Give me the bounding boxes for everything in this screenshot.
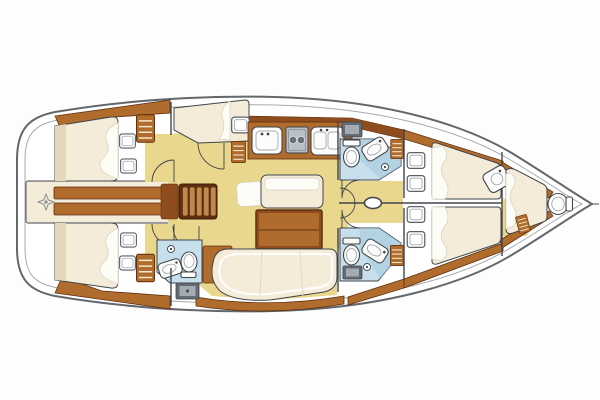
deck-hatch bbox=[407, 207, 425, 223]
settee bbox=[212, 249, 337, 300]
deck-hatch bbox=[407, 153, 425, 169]
stern-platform bbox=[26, 181, 172, 223]
shower-pan bbox=[343, 266, 362, 279]
louvered-locker bbox=[232, 141, 246, 162]
stern-step-board bbox=[54, 187, 171, 199]
shower-pan bbox=[176, 283, 199, 299]
berth-shading bbox=[55, 124, 66, 181]
yacht-floorplan bbox=[0, 0, 600, 400]
berth-shading bbox=[55, 223, 66, 281]
toilet bbox=[343, 238, 360, 265]
toilet bbox=[548, 194, 573, 215]
louvered-locker bbox=[136, 254, 154, 282]
two-burner-stove-icon bbox=[286, 127, 308, 153]
deck-hatch bbox=[120, 134, 136, 148]
shower-head-icon bbox=[364, 264, 371, 271]
deck-hatch bbox=[121, 159, 137, 173]
louvered-locker bbox=[136, 115, 154, 143]
double-sink bbox=[311, 127, 344, 155]
companionway bbox=[161, 184, 217, 219]
deck-hatch bbox=[407, 232, 425, 248]
louvered-locker bbox=[391, 139, 404, 158]
stern-step-board bbox=[54, 203, 171, 215]
stool bbox=[236, 181, 264, 207]
step-treads bbox=[183, 187, 217, 216]
deck-hatch bbox=[232, 117, 250, 133]
toilet bbox=[181, 252, 197, 278]
engine-box bbox=[161, 184, 178, 219]
bench bbox=[261, 175, 323, 208]
deck-hatch bbox=[121, 233, 137, 247]
deck-hatch bbox=[407, 176, 425, 192]
louvered-locker bbox=[390, 245, 403, 265]
mast bbox=[365, 198, 382, 209]
shower-head-icon bbox=[382, 164, 389, 171]
deck-hatch bbox=[120, 256, 136, 270]
shower-pan bbox=[342, 122, 362, 137]
floorplan-canvas bbox=[0, 0, 600, 400]
toilet bbox=[343, 140, 360, 167]
shower-head-icon bbox=[168, 246, 175, 253]
galley-sink bbox=[252, 127, 282, 154]
saloon-table bbox=[256, 210, 322, 249]
